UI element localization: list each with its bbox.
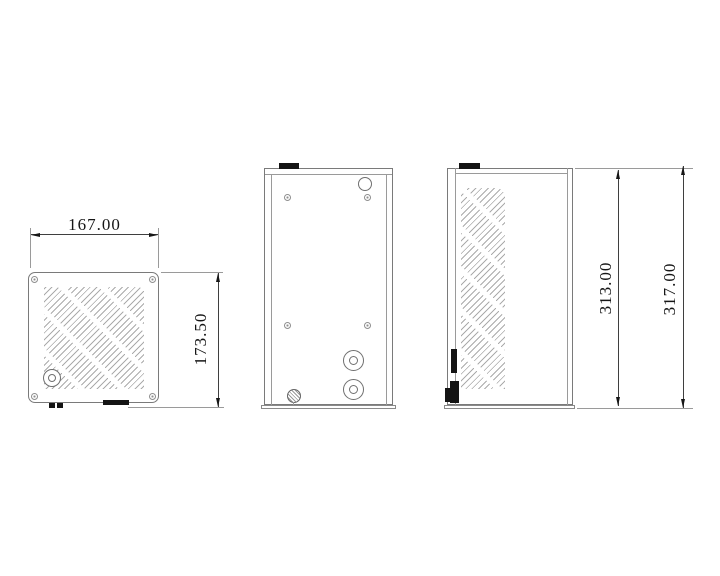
corner-screw — [31, 276, 38, 283]
extension-line — [577, 408, 693, 409]
panel-screw — [364, 194, 371, 201]
dimension-line — [683, 166, 684, 408]
front-height-label: 173.50 — [191, 279, 209, 399]
side-switch-tab — [451, 349, 457, 373]
top-fold-line — [455, 173, 567, 174]
top-fold-line — [265, 174, 392, 175]
front-cable-port-inner — [48, 374, 56, 382]
extension-line — [128, 407, 224, 408]
top-vent-hole — [358, 177, 372, 191]
dim-arrow-down — [216, 398, 220, 407]
side-overall-height-label: 317.00 — [660, 229, 678, 349]
panel-screw — [284, 322, 291, 329]
side-fold-line — [271, 174, 272, 405]
corner-screw — [149, 276, 156, 283]
dim-arrow-up — [616, 170, 620, 179]
front-width-label: 167.00 — [30, 215, 159, 235]
dim-arrow-up — [681, 166, 685, 175]
base-plate — [261, 405, 396, 409]
rear-edge-fold-line — [567, 168, 568, 405]
cable-port-lower-inner — [349, 385, 358, 394]
side-fold-line — [386, 174, 387, 405]
extension-line — [575, 168, 693, 169]
dimension-line — [218, 273, 219, 407]
side-connector-tab — [450, 381, 459, 403]
corner-screw — [31, 393, 38, 400]
corner-screw — [149, 393, 156, 400]
base-plate — [444, 405, 575, 409]
side-vent-grille — [461, 188, 505, 389]
dimension-line — [618, 170, 619, 406]
cable-port-upper-inner — [349, 356, 358, 365]
drawing-canvas: 167.00 173.50 — [0, 0, 720, 576]
top-handle-tab — [279, 163, 299, 169]
back-panel-outline — [264, 168, 393, 405]
side-body-height-label: 313.00 — [596, 228, 614, 348]
side-connector-plug — [445, 388, 451, 402]
cable-grommet — [287, 389, 301, 403]
bottom-connector-tab — [49, 403, 55, 408]
dim-arrow-down — [616, 397, 620, 406]
panel-screw — [284, 194, 291, 201]
extension-line — [161, 272, 223, 273]
bottom-connector-tab — [57, 403, 63, 408]
dim-arrow-down — [681, 399, 685, 408]
top-handle-tab — [459, 163, 480, 169]
panel-screw — [364, 322, 371, 329]
bottom-slot-tab — [103, 400, 129, 405]
dim-arrow-up — [216, 273, 220, 282]
